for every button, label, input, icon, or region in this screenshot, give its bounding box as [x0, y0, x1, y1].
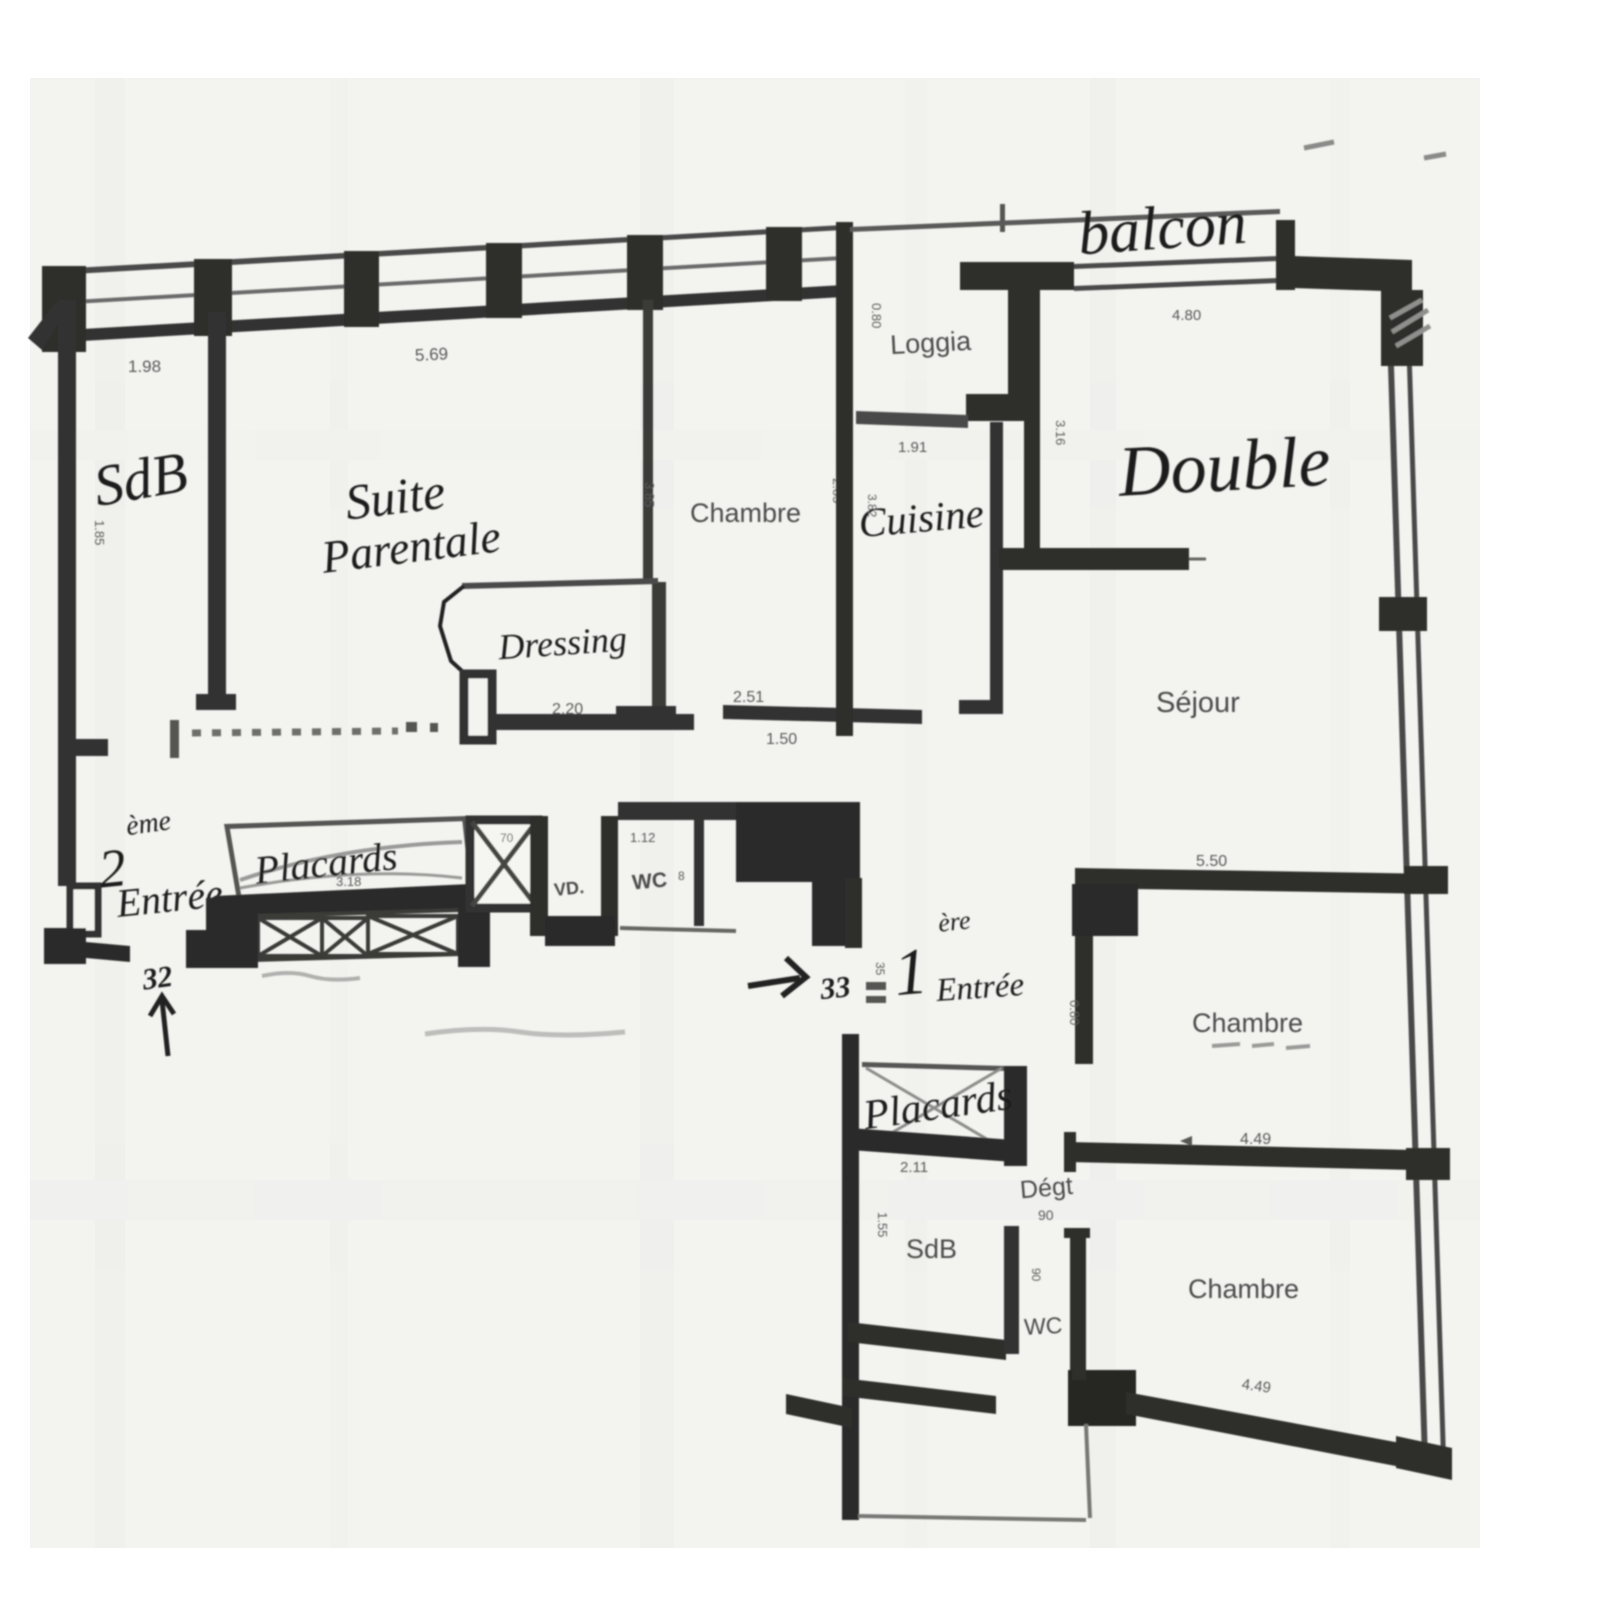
- svg-text:Chambre: Chambre: [690, 498, 801, 528]
- svg-text:35: 35: [873, 962, 887, 976]
- svg-text:2.20: 2.20: [552, 701, 583, 718]
- svg-text:1.85: 1.85: [92, 520, 107, 545]
- svg-text:1: 1: [891, 935, 930, 1011]
- svg-text:ère: ère: [937, 905, 972, 937]
- svg-text:90: 90: [1029, 1268, 1043, 1282]
- svg-text:3.85: 3.85: [642, 482, 657, 507]
- svg-text:VD.: VD.: [553, 877, 585, 900]
- svg-text:Double: Double: [1115, 421, 1332, 512]
- svg-text:4.80: 4.80: [1172, 307, 1201, 324]
- svg-text:WC: WC: [631, 869, 668, 895]
- svg-text:1.12: 1.12: [630, 830, 655, 845]
- svg-text:Chambre: Chambre: [1188, 1274, 1299, 1304]
- svg-text:WC: WC: [1023, 1312, 1063, 1340]
- svg-text:ème: ème: [124, 805, 173, 842]
- svg-text:1.98: 1.98: [128, 357, 161, 376]
- svg-text:4.49: 4.49: [1240, 1131, 1271, 1148]
- svg-text:5.69: 5.69: [415, 344, 449, 365]
- svg-text:3.82: 3.82: [865, 494, 879, 518]
- svg-text:3.18: 3.18: [336, 874, 361, 889]
- svg-text:0.80: 0.80: [869, 303, 884, 328]
- svg-text:Chambre: Chambre: [1192, 1008, 1303, 1038]
- svg-text:5.50: 5.50: [1196, 853, 1227, 870]
- svg-text:70: 70: [500, 831, 514, 845]
- svg-text:Loggia: Loggia: [889, 326, 973, 360]
- svg-text:2.11: 2.11: [900, 1159, 928, 1176]
- svg-text:2.51: 2.51: [733, 689, 764, 706]
- svg-text:0.80: 0.80: [1067, 1000, 1082, 1025]
- svg-text:1.50: 1.50: [766, 731, 797, 748]
- svg-text:Séjour: Séjour: [1156, 687, 1240, 719]
- svg-text:3.16: 3.16: [1053, 420, 1068, 445]
- svg-text:balcon: balcon: [1076, 189, 1249, 269]
- svg-text:33: 33: [818, 970, 852, 1006]
- svg-text:32: 32: [139, 960, 174, 997]
- svg-text:90: 90: [1038, 1207, 1054, 1223]
- svg-text:Dégt: Dégt: [1019, 1172, 1074, 1205]
- svg-text:SdB: SdB: [906, 1234, 957, 1264]
- svg-text:8: 8: [678, 869, 685, 883]
- svg-text:Entrée: Entrée: [934, 967, 1025, 1009]
- svg-text:1.55: 1.55: [875, 1212, 890, 1237]
- svg-text:1.91: 1.91: [898, 439, 927, 456]
